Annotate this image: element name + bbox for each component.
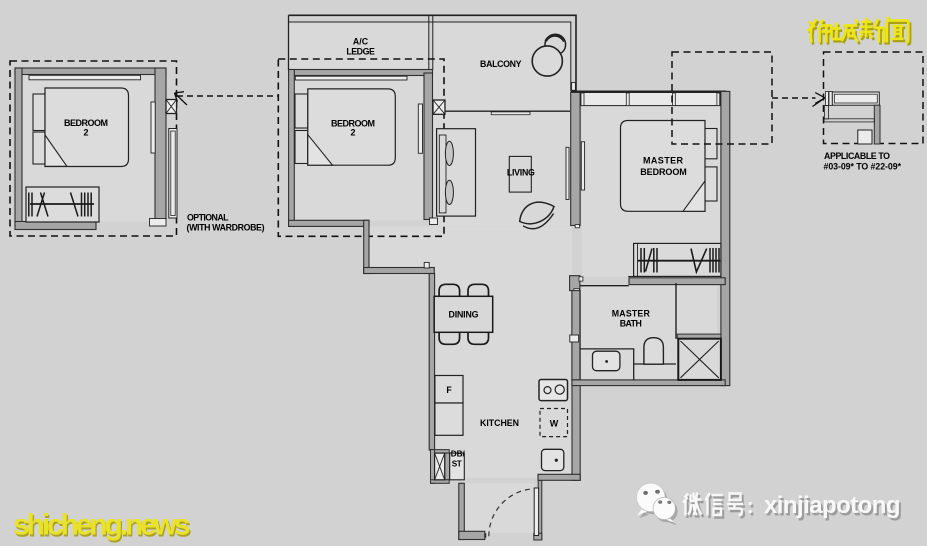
svg-text:OPTIONAL: OPTIONAL <box>187 213 229 223</box>
svg-text:MASTER: MASTER <box>643 156 684 166</box>
svg-text:MASTER: MASTER <box>612 308 651 318</box>
svg-text:W: W <box>550 419 559 429</box>
svg-text:BATH: BATH <box>620 319 642 329</box>
svg-text:LIVING: LIVING <box>507 168 535 178</box>
svg-text:(WITH WARDROBE): (WITH WARDROBE) <box>187 223 265 233</box>
svg-text:F: F <box>446 385 452 395</box>
svg-text:2: 2 <box>83 127 88 137</box>
svg-text:A/C: A/C <box>353 37 369 47</box>
svg-text:BEDROOM: BEDROOM <box>640 167 687 177</box>
svg-text:BALCONY: BALCONY <box>480 59 522 69</box>
svg-text:2: 2 <box>350 128 355 138</box>
svg-text:shicheng.news: shicheng.news <box>13 509 191 542</box>
svg-text:xinjiapotong: xinjiapotong <box>764 492 901 519</box>
svg-text:#03-09* TO #22-09*: #03-09* TO #22-09* <box>824 161 902 171</box>
svg-text:APPLICABLE TO: APPLICABLE TO <box>824 151 890 161</box>
svg-text:ST: ST <box>452 459 462 468</box>
svg-text:KITCHEN: KITCHEN <box>480 418 519 428</box>
svg-text:DB/: DB/ <box>451 449 466 458</box>
svg-text:LEDGE: LEDGE <box>346 46 375 56</box>
svg-text:DINING: DINING <box>449 310 479 320</box>
